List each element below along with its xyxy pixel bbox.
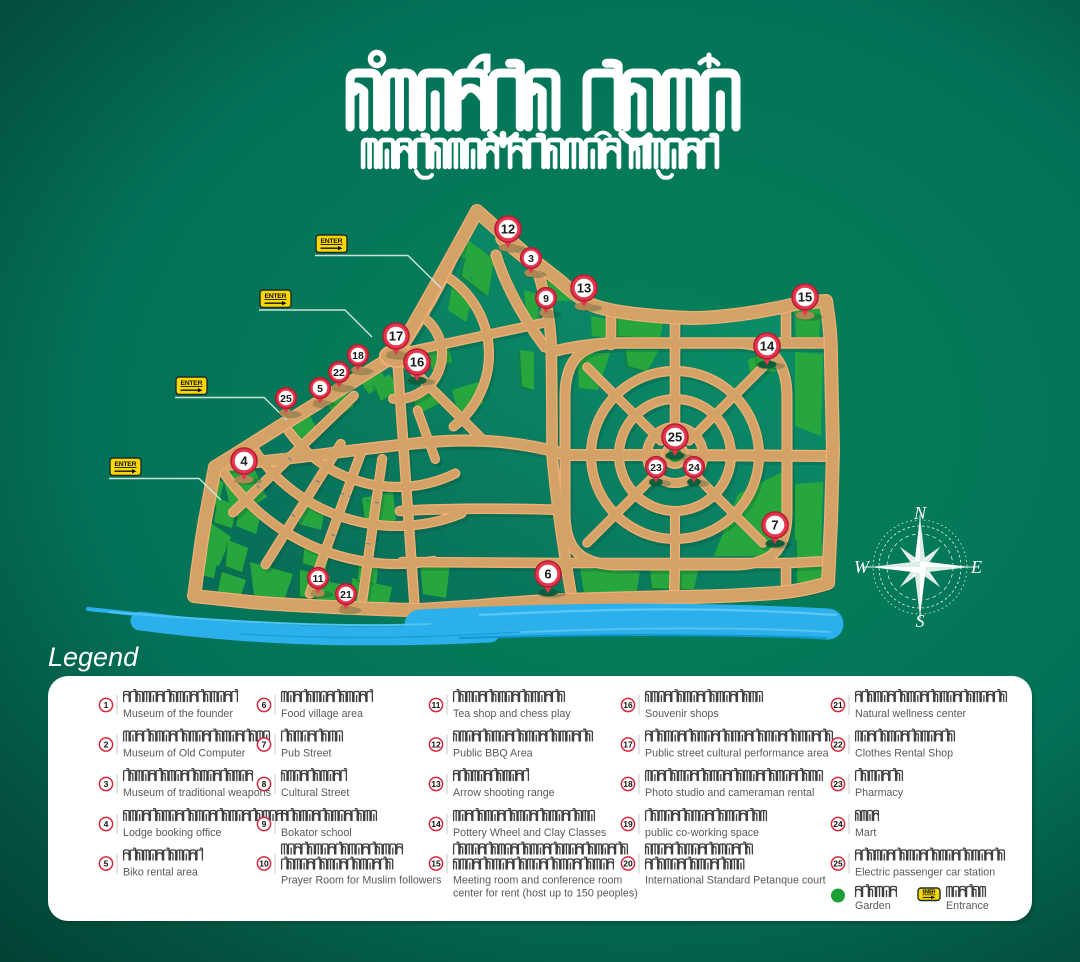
svg-text:Natural wellness center: Natural wellness center <box>855 708 967 720</box>
svg-text:5: 5 <box>317 383 323 395</box>
svg-text:1: 1 <box>104 700 109 710</box>
svg-text:Cultural Street: Cultural Street <box>281 787 349 799</box>
svg-text:9: 9 <box>262 819 267 829</box>
svg-text:22: 22 <box>333 367 345 379</box>
svg-text:25: 25 <box>833 859 843 869</box>
svg-text:Garden: Garden <box>855 900 891 912</box>
svg-text:25: 25 <box>280 393 292 405</box>
svg-text:4: 4 <box>104 819 109 829</box>
svg-text:20: 20 <box>623 859 633 869</box>
svg-text:ENTER: ENTER <box>321 238 343 245</box>
svg-text:4: 4 <box>240 454 248 469</box>
svg-text:ENTER: ENTER <box>265 293 287 300</box>
svg-text:13: 13 <box>577 281 591 296</box>
svg-text:24: 24 <box>833 819 843 829</box>
svg-text:6: 6 <box>544 567 551 582</box>
svg-text:Meeting room and conference ro: Meeting room and conference room <box>453 875 622 887</box>
svg-text:10: 10 <box>259 859 269 869</box>
svg-text:Souvenir shops: Souvenir shops <box>645 708 719 720</box>
svg-text:7: 7 <box>262 740 267 750</box>
svg-text:Clothes Rental Shop: Clothes Rental Shop <box>855 748 953 760</box>
svg-text:16: 16 <box>623 700 633 710</box>
svg-text:12: 12 <box>501 222 515 237</box>
svg-text:Entrance: Entrance <box>946 900 989 912</box>
svg-text:24: 24 <box>688 462 700 474</box>
svg-text:7: 7 <box>771 518 778 533</box>
svg-text:ENTER: ENTER <box>181 380 203 387</box>
svg-text:11: 11 <box>312 573 323 585</box>
svg-text:23: 23 <box>833 779 843 789</box>
svg-text:18: 18 <box>623 779 633 789</box>
svg-text:Museum of traditional weapons: Museum of traditional weapons <box>123 787 271 799</box>
svg-text:Lodge booking office: Lodge booking office <box>123 827 222 839</box>
svg-text:14: 14 <box>431 819 441 829</box>
svg-text:13: 13 <box>431 779 441 789</box>
svg-text:Photo studio and cameraman ren: Photo studio and cameraman rental <box>645 787 814 799</box>
svg-text:Prayer Room for Muslim followe: Prayer Room for Muslim followers <box>281 875 441 887</box>
svg-text:International Standard Petanqu: International Standard Petanque court <box>645 875 826 887</box>
svg-text:Legend: Legend <box>48 642 139 672</box>
svg-text:E: E <box>970 557 982 577</box>
svg-text:Pottery Wheel and Clay Classes: Pottery Wheel and Clay Classes <box>453 827 606 839</box>
svg-text:public co-working space: public co-working space <box>645 827 759 839</box>
svg-text:Bokator school: Bokator school <box>281 827 352 839</box>
svg-text:21: 21 <box>833 700 843 710</box>
svg-text:Arrow shooting range: Arrow shooting range <box>453 787 555 799</box>
svg-text:12: 12 <box>431 740 441 750</box>
svg-text:Public BBQ Area: Public BBQ Area <box>453 748 533 760</box>
svg-text:Pharmacy: Pharmacy <box>855 787 904 799</box>
svg-text:23: 23 <box>650 462 662 474</box>
svg-text:N: N <box>913 503 927 523</box>
svg-text:21: 21 <box>340 589 352 601</box>
svg-text:Biko rental area: Biko rental area <box>123 867 198 879</box>
svg-text:W: W <box>854 557 871 577</box>
svg-text:25: 25 <box>668 430 682 445</box>
svg-text:17: 17 <box>389 329 403 344</box>
svg-text:ENTER: ENTER <box>115 461 137 468</box>
svg-text:15: 15 <box>798 290 812 305</box>
svg-text:16: 16 <box>410 355 424 370</box>
svg-text:5: 5 <box>104 859 109 869</box>
svg-text:6: 6 <box>262 700 267 710</box>
svg-text:8: 8 <box>262 779 267 789</box>
svg-text:Museum of Old Computer: Museum of Old Computer <box>123 748 246 760</box>
svg-text:Food village area: Food village area <box>281 708 363 720</box>
svg-text:9: 9 <box>543 293 549 305</box>
svg-text:18: 18 <box>352 350 364 362</box>
svg-text:S: S <box>916 611 925 631</box>
svg-text:3: 3 <box>528 253 534 265</box>
svg-text:Electric passenger car station: Electric passenger car station <box>855 867 995 879</box>
svg-text:14: 14 <box>760 339 775 354</box>
svg-text:17: 17 <box>623 740 633 750</box>
svg-text:Mart: Mart <box>855 827 876 839</box>
svg-text:15: 15 <box>431 859 441 869</box>
svg-text:Tea shop and chess play: Tea shop and chess play <box>453 708 571 720</box>
svg-text:Pub Street: Pub Street <box>281 748 332 760</box>
svg-text:center for rent (host up to 15: center for rent (host up to 150 peoples) <box>453 888 638 900</box>
svg-text:22: 22 <box>833 740 843 750</box>
svg-text:11: 11 <box>432 700 441 710</box>
svg-text:3: 3 <box>104 779 109 789</box>
svg-text:Public street cultural perform: Public street cultural performance area <box>645 748 829 760</box>
svg-text:2: 2 <box>104 740 109 750</box>
svg-text:Museum of the founder: Museum of the founder <box>123 708 233 720</box>
svg-text:19: 19 <box>623 819 633 829</box>
